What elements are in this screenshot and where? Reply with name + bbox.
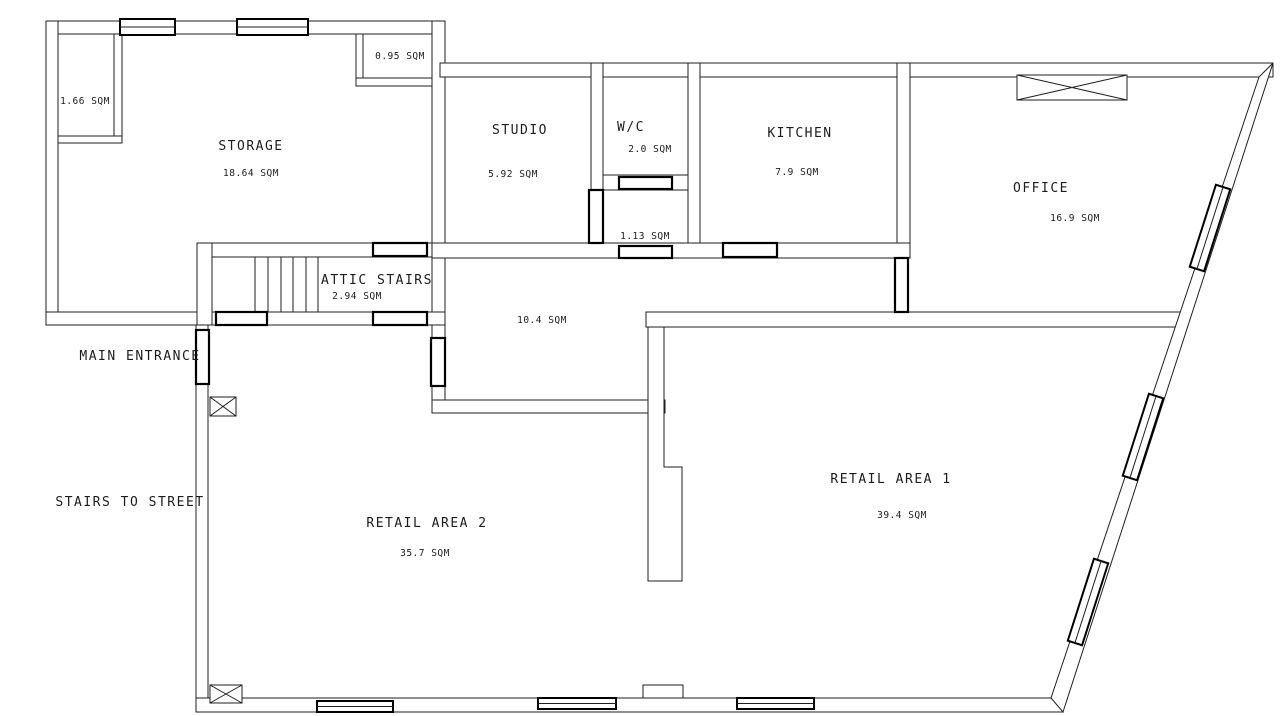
wall-shaft-south [356,78,432,86]
wall-corridor-south [432,400,665,413]
skylight-shaft-box [1017,75,1127,100]
door-corridor-west [431,338,445,386]
door-office [895,258,908,312]
door-wc [619,177,672,189]
column-box-upper [210,397,236,416]
attic-stair-treads [255,257,318,312]
room-label-attic-stairs: ATTIC STAIRS [321,273,433,288]
room-area-storage: 18.64 SQM [223,168,279,179]
crossed-box-layer [210,75,1127,703]
door-storage-south-left [216,312,267,325]
door-studio-east [589,190,603,243]
window-north-1 [120,19,175,35]
column-box-lower [210,685,242,703]
window-north-2 [237,19,308,35]
room-area-attic-stairs: 2.94 SQM [332,291,382,302]
annotation-stairs-to-street: STAIRS TO STREET [55,495,204,510]
room-area-wc: 2.0 SQM [628,144,672,155]
wall-north-main [440,63,1273,77]
doors-layer [196,177,908,386]
room-area-retail-1: 39.4 SQM [877,510,927,521]
annotation-main-entrance: MAIN ENTRANCE [79,349,200,364]
room-label-kitchen: KITCHEN [767,126,832,141]
wall-retail1-north [646,312,1183,327]
door-kitchen [723,243,777,257]
space-area-closet: 1.66 SQM [60,96,110,107]
door-wc-lobby [619,246,672,258]
wall-closet-south [58,136,122,143]
room-area-retail-2: 35.7 SQM [400,548,450,559]
window-south-2 [538,698,616,709]
room-label-office: OFFICE [1013,181,1069,196]
space-area-wc-lobby: 1.13 SQM [620,231,670,242]
wall-attic-step [197,243,212,325]
window-slant-2 [1123,394,1163,480]
floor-plan: STORAGE 18.64 SQM 1.66 SQM 0.95 SQM STUD… [0,0,1280,716]
room-area-studio: 5.92 SQM [488,169,538,180]
window-south-1 [317,701,393,712]
room-area-kitchen: 7.9 SQM [775,167,819,178]
room-label-retail-2: RETAIL AREA 2 [366,516,487,531]
wall-south-pier [643,685,683,698]
door-storage-south-right [373,312,427,325]
door-attic-north [373,243,427,256]
wall-wc-west [591,63,603,190]
room-label-wc: W/C [617,120,645,135]
room-area-office: 16.9 SQM [1050,213,1100,224]
room-label-retail-1: RETAIL AREA 1 [830,472,951,487]
wall-west-exterior [46,21,58,325]
space-area-corridor: 10.4 SQM [517,315,567,326]
window-south-3 [737,698,814,709]
room-label-studio: STUDIO [492,123,548,138]
wall-closet-east [114,34,122,143]
room-label-storage: STORAGE [218,139,283,154]
wall-kitchen-east [897,63,910,258]
space-area-shaft: 0.95 SQM [375,51,425,62]
wall-wc-east [688,63,700,258]
wall-retail-partition [648,327,682,581]
windows-layer [120,19,1230,712]
